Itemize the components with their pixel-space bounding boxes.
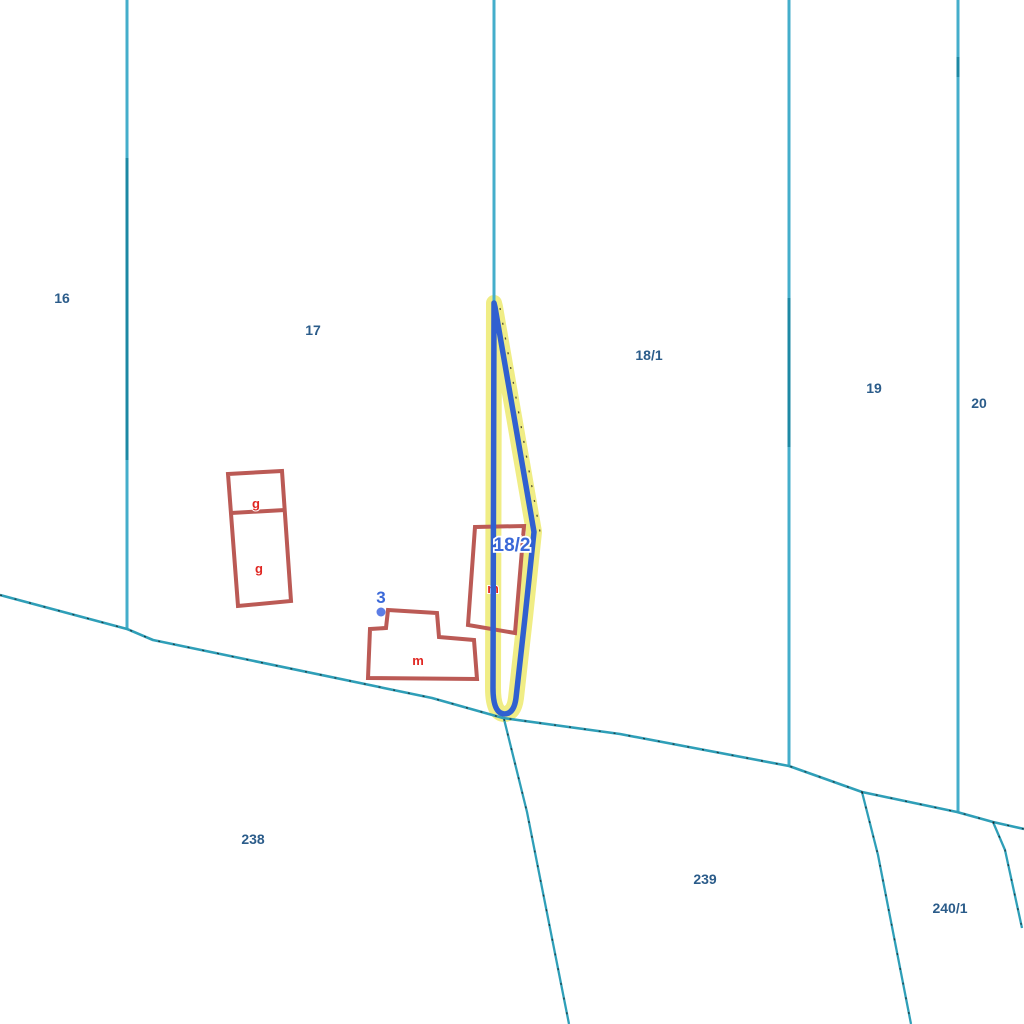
address-point-label: 3 (376, 588, 385, 607)
parcel-boundaries (0, 0, 1024, 1024)
building-outline-g (228, 471, 291, 606)
parcel-boundary-238-239 (504, 719, 569, 1024)
parcel-label-20: 20 (971, 395, 987, 411)
parcel-boundary-240-right (993, 822, 1022, 928)
selected-parcel-label[interactable]: 18/2 (494, 535, 531, 556)
parcel-label-17: 17 (305, 322, 321, 338)
parcel-boundary-239-240 (862, 792, 911, 1024)
building-label-g: g (255, 561, 263, 576)
parcel-label-240-1: 240/1 (932, 900, 967, 916)
buildings (228, 471, 524, 679)
building-label-m: m (412, 653, 424, 668)
map-viewport[interactable]: g g m m 16 17 18/1 19 20 238 239 240/1 3… (0, 0, 1024, 1024)
building-label-g: g (252, 496, 260, 511)
cadastral-map-canvas[interactable]: g g m m 16 17 18/1 19 20 238 239 240/1 3… (0, 0, 1024, 1024)
parcel-label-16: 16 (54, 290, 70, 306)
parcel-label-239: 239 (693, 871, 717, 887)
parcel-label-18-1: 18/1 (635, 347, 662, 363)
building-outline-m-left (368, 610, 477, 679)
parcel-label-19: 19 (866, 380, 882, 396)
address-point: 3 (376, 588, 385, 617)
parcel-label-238: 238 (241, 831, 265, 847)
address-point-marker (377, 608, 386, 617)
